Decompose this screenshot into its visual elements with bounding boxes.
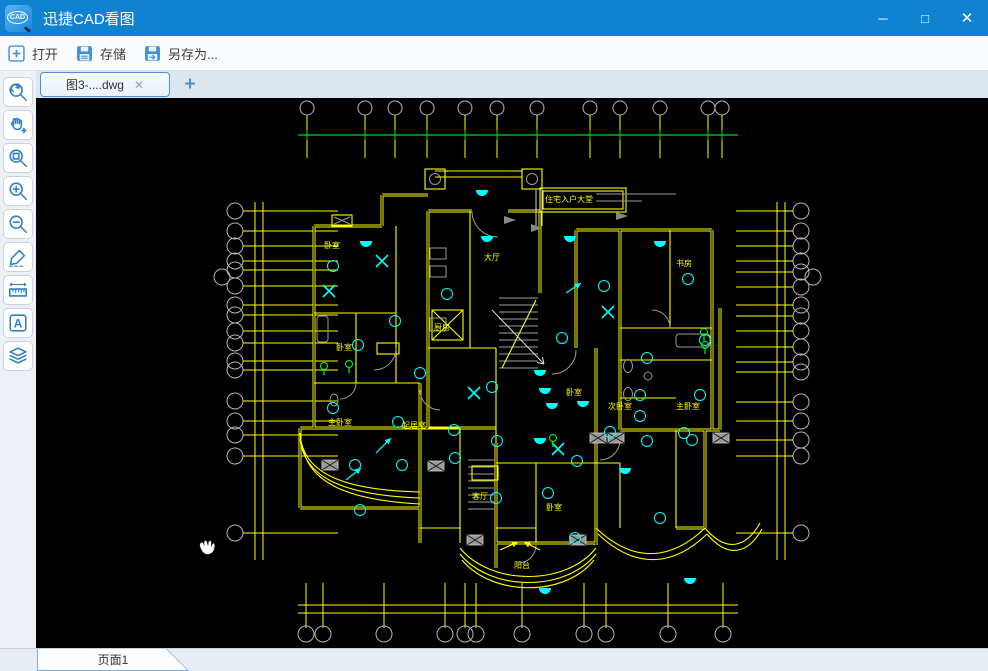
save-as-icon [144,45,161,62]
workspace: A 图3-....dwg ✕ + [0,71,988,648]
layers-icon [7,345,29,367]
cad-logo-magnifier-handle [24,26,31,33]
zoom-out-icon [7,213,29,235]
document-area: 图3-....dwg ✕ + [36,71,988,648]
svg-text:A: A [14,317,23,331]
tabbar: 图3-....dwg ✕ + [36,71,988,98]
document-tab-label: 图3-....dwg [66,76,124,93]
cad-logo-icon: CAD [5,5,32,32]
window-title: 迅捷CAD看图 [43,8,862,29]
zoom-in-button[interactable] [3,176,33,206]
zoom-out-button[interactable] [3,209,33,239]
tool-sidebar: A [0,71,36,648]
text-icon: A [7,312,29,334]
maximize-button[interactable]: □ [904,0,946,36]
pan-hand-icon [7,114,29,136]
cad-logo-text: CAD [7,11,28,24]
open-label: 打开 [32,44,58,63]
save-as-label: 另存为... [168,44,218,63]
zoom-extents-button[interactable] [3,77,33,107]
svg-text:起居室: 起居室 [402,420,426,430]
save-as-button[interactable]: 另存为... [144,44,218,63]
measure-button[interactable] [3,275,33,305]
zoom-in-icon [7,180,29,202]
window-controls: ─ □ ✕ [862,0,988,36]
svg-text:卧室: 卧室 [566,387,582,397]
open-button[interactable]: 打开 [8,44,58,63]
svg-text:卧室: 卧室 [336,342,352,352]
svg-text:客厅: 客厅 [472,491,488,501]
save-icon [76,45,93,62]
pan-button[interactable] [3,110,33,140]
svg-text:卧室: 卧室 [324,240,340,250]
save-label: 存储 [100,44,126,63]
zoom-extents-icon [7,81,29,103]
svg-text:次卧室: 次卧室 [608,401,632,411]
svg-text:阳台: 阳台 [514,560,530,570]
svg-text:厨房: 厨房 [434,322,450,332]
add-tab-button[interactable]: + [175,73,205,96]
hand-cursor [200,540,215,554]
document-tab[interactable]: 图3-....dwg ✕ [40,72,170,97]
cad-viewer-window: CAD 迅捷CAD看图 ─ □ ✕ 打开 存储 [0,0,988,671]
zoom-window-button[interactable] [3,143,33,173]
pencil-icon [7,246,29,268]
close-button[interactable]: ✕ [946,0,988,36]
save-button[interactable]: 存储 [76,44,126,63]
svg-text:住宅入户大堂: 住宅入户大堂 [545,194,593,204]
text-button[interactable]: A [3,308,33,338]
tab-close-icon[interactable]: ✕ [134,78,144,92]
ruler-icon [7,279,29,301]
svg-text:大厅: 大厅 [484,252,500,262]
toolbar: 打开 存储 另存为... [0,36,988,71]
svg-text:书房: 书房 [676,258,692,268]
svg-text:主卧室: 主卧室 [328,417,352,427]
zoom-window-icon [7,147,29,169]
generated-symbols: 卧室厨房大厅书房卧室住宅入户大堂卧室次卧室主卧室主卧室起居室客厅卧室阳台 [321,190,730,594]
svg-text:卧室: 卧室 [546,502,562,512]
drawing-canvas[interactable]: 卧室厨房大厅书房卧室住宅入户大堂卧室次卧室主卧室主卧室起居室客厅卧室阳台 [36,98,988,648]
statusbar: 页面1 [0,648,988,671]
layers-button[interactable] [3,341,33,371]
minimize-button[interactable]: ─ [862,0,904,36]
titlebar: CAD 迅捷CAD看图 ─ □ ✕ [0,0,988,36]
floor-plan-drawing: 卧室厨房大厅书房卧室住宅入户大堂卧室次卧室主卧室主卧室起居室客厅卧室阳台 [36,98,988,648]
page-tab[interactable]: 页面1 [38,649,188,670]
draw-button[interactable] [3,242,33,272]
plus-box-icon [8,45,25,62]
svg-text:主卧室: 主卧室 [676,401,700,411]
